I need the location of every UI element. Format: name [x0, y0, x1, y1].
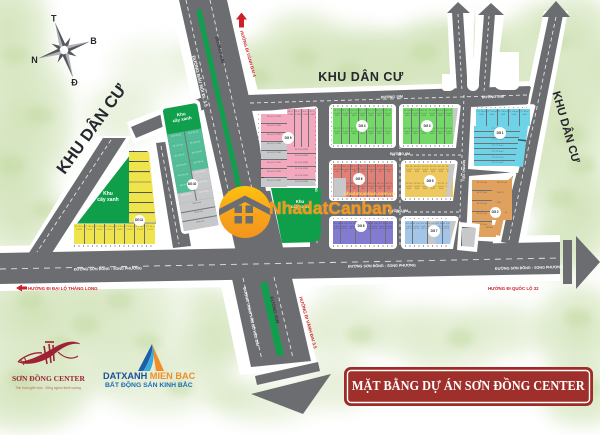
svg-text:T: T — [51, 14, 57, 24]
svg-text:Đ: Đ — [71, 77, 78, 87]
svg-text:N: N — [31, 55, 38, 65]
svg-text:B: B — [90, 36, 97, 46]
